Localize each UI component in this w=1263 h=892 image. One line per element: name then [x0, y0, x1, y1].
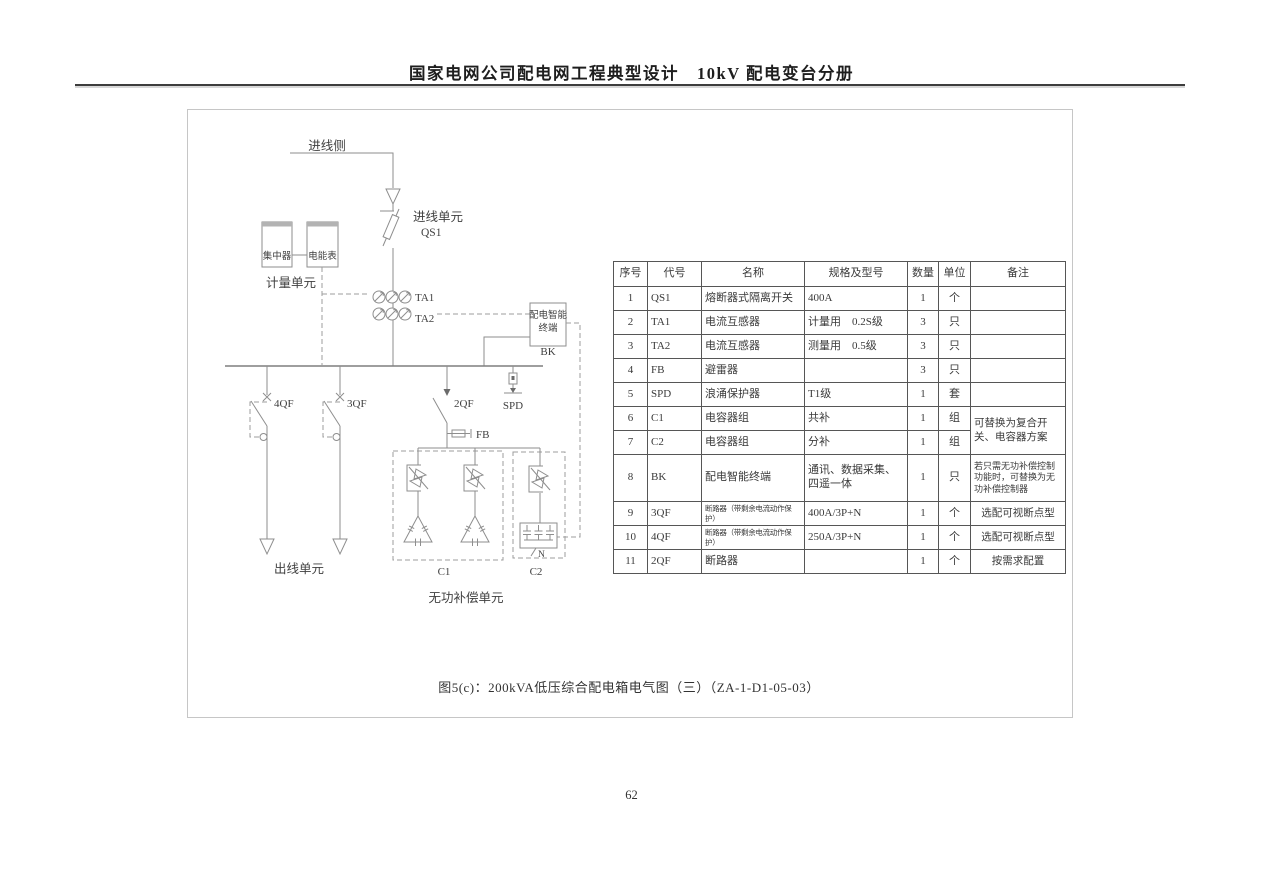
fb-arrester-symbol: FB: [447, 429, 489, 441]
cell-no: 2: [614, 311, 648, 335]
ta1-label: TA1: [415, 292, 434, 304]
cell-spec: 测量用 0.5级: [805, 335, 908, 359]
qs1-fuse-switch-symbol: 进线单元 QS1: [380, 209, 463, 366]
spd-symbol: SPD: [503, 366, 523, 412]
fb-label: FB: [476, 429, 489, 441]
qf4-label: 4QF: [274, 398, 294, 410]
c2-label: C2: [530, 566, 543, 578]
table-row: 9 3QF 断路器（带剩余电流动作保护） 400A/3P+N 1 个 选配可视断…: [614, 502, 1066, 526]
table-row: 3 TA2 电流互感器 测量用 0.5级 3 只: [614, 335, 1066, 359]
cell-no: 1: [614, 287, 648, 311]
cell-qty: 1: [908, 526, 939, 550]
cell-code: C1: [648, 407, 702, 431]
cell-spec: 400A/3P+N: [805, 502, 908, 526]
concentrator-label: 集中器: [263, 250, 292, 262]
neutral-label: N: [538, 550, 545, 560]
col-header-code: 代号: [648, 262, 702, 287]
cell-remark: 按需求配置: [971, 550, 1066, 574]
cell-spec: 通讯、数据采集、四遥一体: [805, 455, 908, 502]
cell-qty: 3: [908, 359, 939, 383]
cell-code: SPD: [648, 383, 702, 407]
cell-spec: 250A/3P+N: [805, 526, 908, 550]
cell-no: 8: [614, 455, 648, 502]
cell-code: TA2: [648, 335, 702, 359]
cell-name: 浪涌保护器: [702, 383, 805, 407]
cell-name: 熔断器式隔离开关: [702, 287, 805, 311]
c2-capacitor-box: N: [520, 523, 557, 560]
cell-remark: 选配可视断点型: [971, 502, 1066, 526]
incoming-arrow: [386, 189, 400, 204]
cell-code: 3QF: [648, 502, 702, 526]
cell-no: 11: [614, 550, 648, 574]
cell-name: 避雷器: [702, 359, 805, 383]
table-header-row: 序号 代号 名称 规格及型号 数量 单位 备注: [614, 262, 1066, 287]
outgoing-unit-label: 出线单元: [274, 562, 324, 576]
cell-no: 4: [614, 359, 648, 383]
cell-name: 断路器（带剩余电流动作保护）: [702, 502, 805, 526]
cell-code: TA1: [648, 311, 702, 335]
cell-name: 电容器组: [702, 431, 805, 455]
incoming-feeder: 进线侧: [290, 139, 400, 211]
cell-unit: 个: [939, 526, 971, 550]
table-row: 5 SPD 浪涌保护器 T1级 1 套: [614, 383, 1066, 407]
cell-qty: 1: [908, 550, 939, 574]
cell-unit: 组: [939, 407, 971, 431]
smart-terminal-bk: 配电智能 终端 BK: [437, 303, 580, 537]
table-row: 1 QS1 熔断器式隔离开关 400A 1 个: [614, 287, 1066, 311]
cell-qty: 1: [908, 431, 939, 455]
cell-no: 7: [614, 431, 648, 455]
reactive-compensation-unit: N C1 C2 无功补偿单元: [393, 448, 565, 605]
incoming-unit-label: 进线单元: [413, 210, 463, 224]
thyristor-switch: [529, 466, 550, 492]
terminal-name-line2: 终端: [538, 322, 558, 334]
cell-remark: 若只需无功补偿控制功能时，可替换为无功补偿控制器: [971, 455, 1066, 502]
spd-label: SPD: [503, 400, 523, 412]
cell-remark: 选配可视断点型: [971, 526, 1066, 550]
cell-code: BK: [648, 455, 702, 502]
qf2-label: 2QF: [454, 398, 474, 410]
cell-no: 10: [614, 526, 648, 550]
reactive-unit-label: 无功补偿单元: [428, 590, 503, 605]
cell-qty: 1: [908, 455, 939, 502]
cell-remark: [971, 311, 1066, 335]
component-table: 序号 代号 名称 规格及型号 数量 单位 备注 1 QS1 熔断器式隔离开关 4…: [613, 261, 1066, 574]
col-header-no: 序号: [614, 262, 648, 287]
cell-unit: 只: [939, 455, 971, 502]
cell-unit: 组: [939, 431, 971, 455]
cell-no: 5: [614, 383, 648, 407]
qs1-label: QS1: [421, 227, 442, 239]
cell-qty: 3: [908, 311, 939, 335]
cell-name: 断路器（带剩余电流动作保护）: [702, 526, 805, 550]
cell-code: 2QF: [648, 550, 702, 574]
qf3-label: 3QF: [347, 398, 367, 410]
col-header-spec: 规格及型号: [805, 262, 908, 287]
col-header-qty: 数量: [908, 262, 939, 287]
cell-code: C2: [648, 431, 702, 455]
cell-spec: [805, 359, 908, 383]
cell-unit: 套: [939, 383, 971, 407]
cell-code: QS1: [648, 287, 702, 311]
cell-unit: 只: [939, 311, 971, 335]
cell-name: 电流互感器: [702, 311, 805, 335]
cell-remark: [971, 335, 1066, 359]
terminal-name-line1: 配电智能: [529, 309, 568, 321]
c1-label: C1: [438, 566, 451, 578]
cell-unit: 只: [939, 359, 971, 383]
cell-unit: 个: [939, 287, 971, 311]
col-header-unit: 单位: [939, 262, 971, 287]
incoming-side-label: 进线侧: [308, 139, 346, 153]
bk-label: BK: [540, 346, 555, 358]
cell-spec: T1级: [805, 383, 908, 407]
table-row: 8 BK 配电智能终端 通讯、数据采集、四遥一体 1 只 若只需无功补偿控制功能…: [614, 455, 1066, 502]
cell-qty: 1: [908, 383, 939, 407]
ta2-ct-group: TA2: [373, 308, 434, 325]
cell-name: 电容器组: [702, 407, 805, 431]
cell-remark: [971, 383, 1066, 407]
metering-unit-label: 计量单元: [266, 276, 316, 290]
metering-unit: 集中器 电能表 计量单元: [262, 222, 367, 365]
cell-unit: 个: [939, 502, 971, 526]
energy-meter-label: 电能表: [308, 250, 337, 262]
cell-qty: 1: [908, 287, 939, 311]
cell-code: 4QF: [648, 526, 702, 550]
thyristor-switch: [464, 465, 485, 491]
table-row: 2 TA1 电流互感器 计量用 0.2S级 3 只: [614, 311, 1066, 335]
cell-no: 6: [614, 407, 648, 431]
cell-code: FB: [648, 359, 702, 383]
cell-qty: 1: [908, 502, 939, 526]
cell-spec: [805, 550, 908, 574]
delta-capacitor-bank: [404, 516, 432, 546]
cell-spec: 计量用 0.2S级: [805, 311, 908, 335]
cell-name: 配电智能终端: [702, 455, 805, 502]
ta1-ct-group: TA1: [373, 291, 434, 304]
thyristor-switch: [407, 465, 428, 491]
figure-caption: 图5(c)：200kVA低压综合配电箱电气图（三）（ZA-1-D1-05-03）: [187, 677, 1071, 696]
col-header-remark: 备注: [971, 262, 1066, 287]
table-row: 11 2QF 断路器 1 个 按需求配置: [614, 550, 1066, 574]
cell-remark: [971, 287, 1066, 311]
cell-remark: [971, 359, 1066, 383]
cell-unit: 个: [939, 550, 971, 574]
delta-capacitor-bank: [461, 516, 489, 546]
ta2-label: TA2: [415, 313, 434, 325]
cell-spec: 400A: [805, 287, 908, 311]
table-row: 10 4QF 断路器（带剩余电流动作保护） 250A/3P+N 1 个 选配可视…: [614, 526, 1066, 550]
cell-spec: 共补: [805, 407, 908, 431]
cell-name: 电流互感器: [702, 335, 805, 359]
page-number: 62: [0, 788, 1263, 803]
cell-no: 9: [614, 502, 648, 526]
table-row: 4 FB 避雷器 3 只: [614, 359, 1066, 383]
col-header-name: 名称: [702, 262, 805, 287]
cell-spec: 分补: [805, 431, 908, 455]
cell-remark-merged: 可替换为复合开关、电容器方案: [971, 407, 1066, 455]
cell-no: 3: [614, 335, 648, 359]
cell-unit: 只: [939, 335, 971, 359]
cell-qty: 3: [908, 335, 939, 359]
breaker-4qf: 4QF: [250, 366, 294, 554]
cell-name: 断路器: [702, 550, 805, 574]
breaker-3qf: 3QF: [323, 366, 367, 554]
table-row: 6 C1 电容器组 共补 1 组 可替换为复合开关、电容器方案: [614, 407, 1066, 431]
cell-qty: 1: [908, 407, 939, 431]
